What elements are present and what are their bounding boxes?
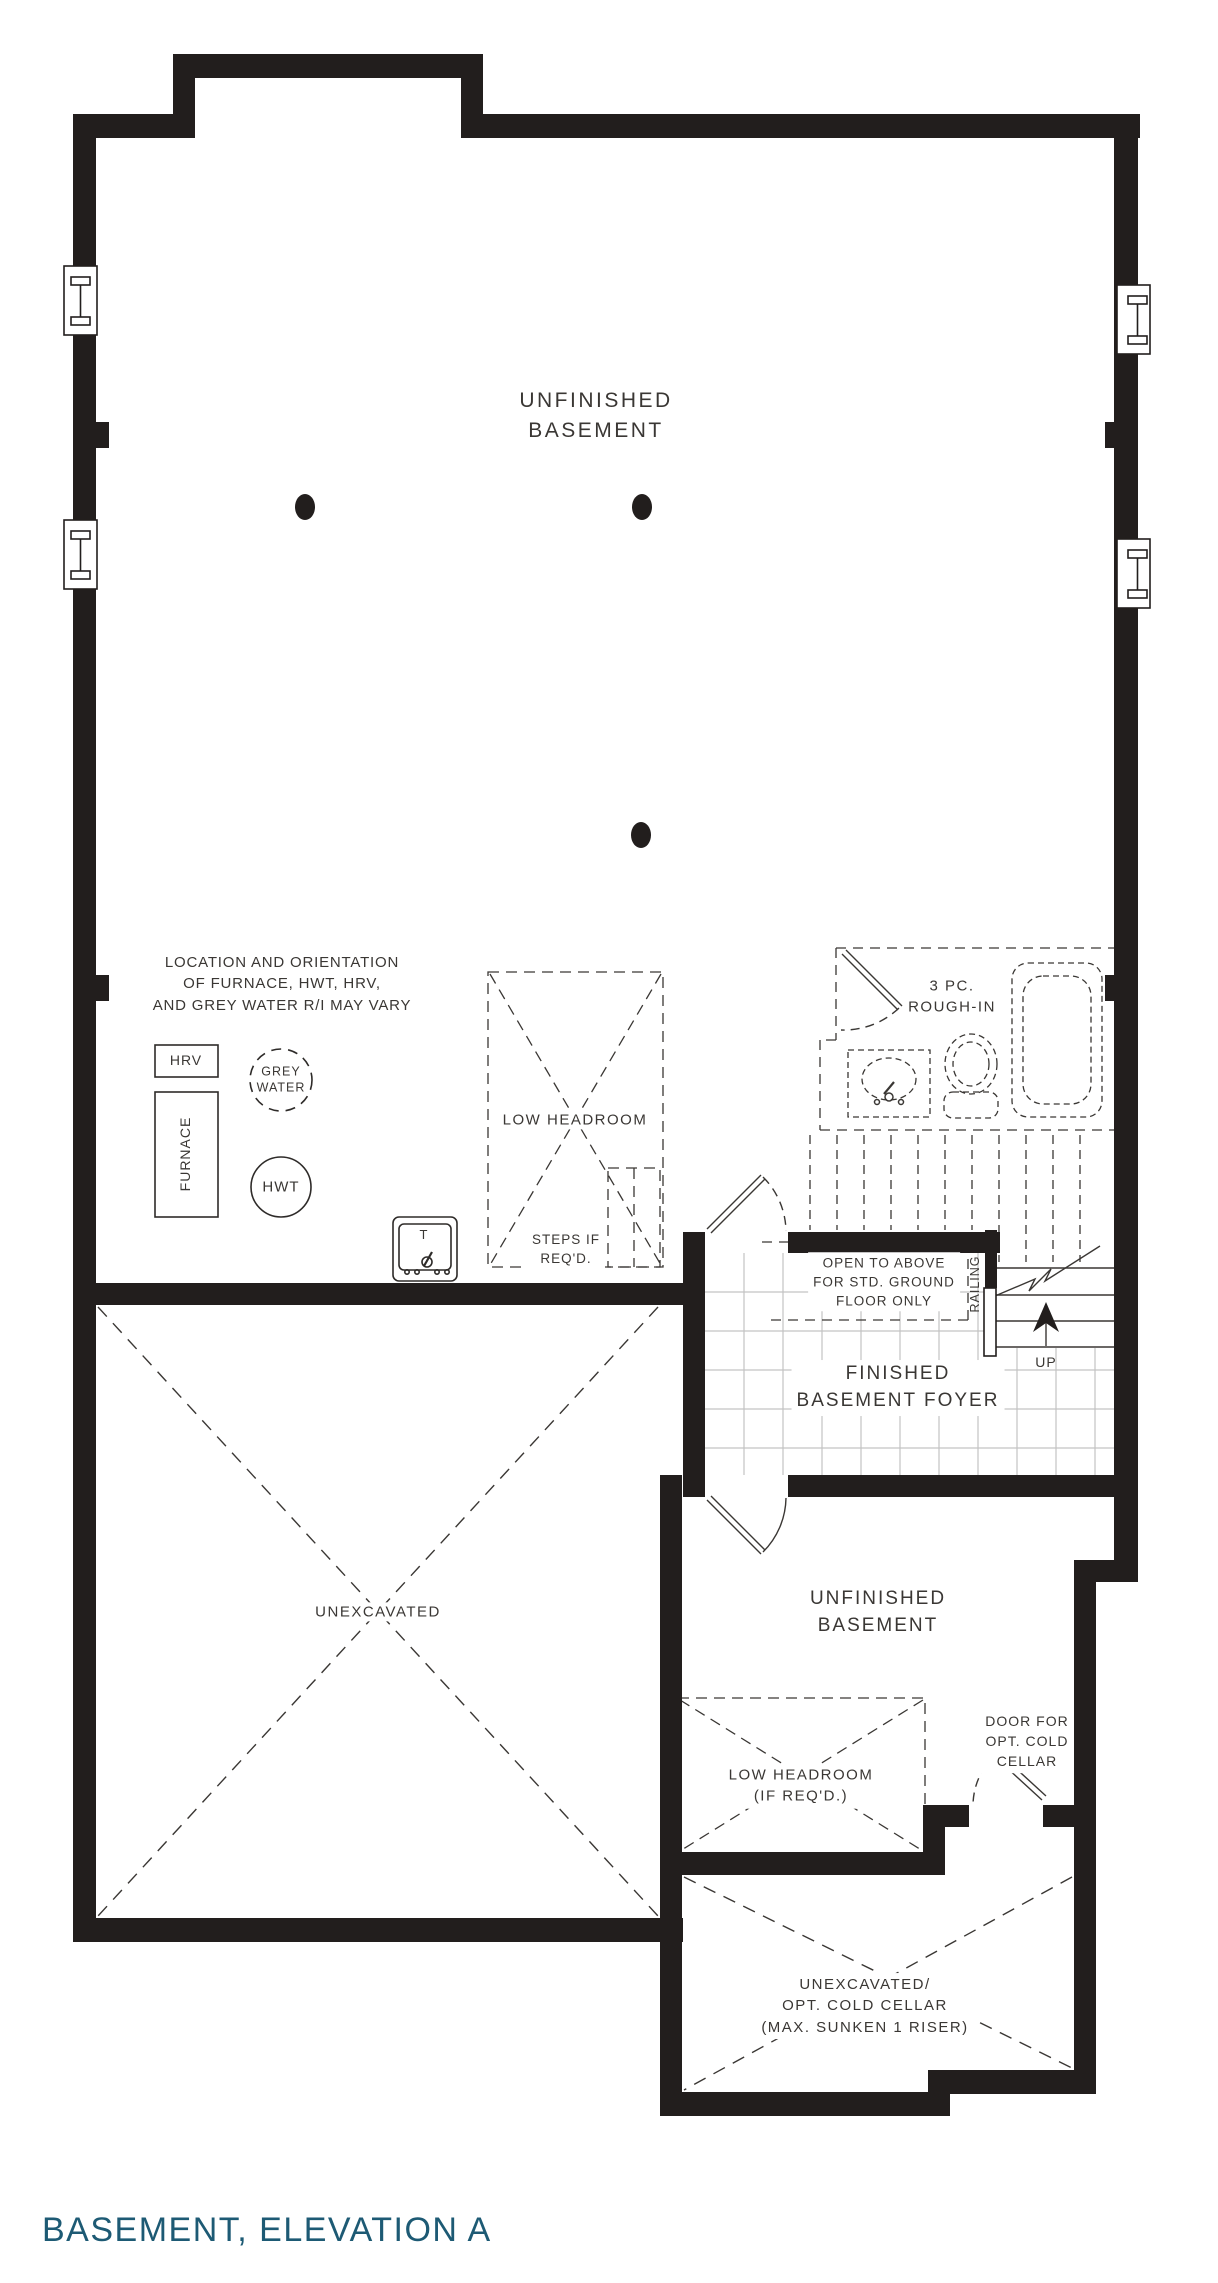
- stairs: [984, 1246, 1114, 1356]
- up-label: UP: [1035, 1353, 1056, 1373]
- bathtub-inner: [1023, 976, 1091, 1104]
- window-left-2: [64, 520, 97, 589]
- room-label-unfinished-basement-right: UNFINISHED BASEMENT: [810, 1586, 946, 1640]
- toilet-seat: [953, 1042, 989, 1086]
- toilet-tank: [944, 1092, 998, 1118]
- mechanical-equipment: [155, 1045, 457, 1281]
- steps-area: [608, 1168, 660, 1267]
- railing-label: RAILING: [967, 1255, 985, 1312]
- floor-plan: UNFINISHED BASEMENT LOCATION AND ORIENTA…: [0, 0, 1218, 2283]
- structural-columns: [295, 494, 652, 848]
- low-headroom-if-reqd-label: LOW HEADROOM (IF REQ'D.): [724, 1764, 879, 1809]
- sink-counter: [848, 1050, 930, 1117]
- page-title: BASEMENT, ELEVATION A: [42, 2206, 492, 2254]
- room-label-foyer: FINISHED BASEMENT FOYER: [792, 1360, 1005, 1416]
- rough-in-label: 3 PC. ROUGH-IN: [908, 976, 996, 1019]
- foyer-lower-door: [707, 1496, 786, 1554]
- railing-bar: [984, 1288, 996, 1356]
- window-right-1: [1117, 285, 1150, 354]
- room-label-cold-cellar: UNEXCAVATED/ OPT. COLD CELLAR (MAX. SUNK…: [756, 1973, 973, 2039]
- foyer-upper-door: [707, 1175, 786, 1233]
- mechanical-note: LOCATION AND ORIENTATION OF FURNACE, HWT…: [153, 952, 412, 1016]
- wall-notch: [1105, 422, 1118, 448]
- unexcavated-top-wall: [96, 1283, 683, 1305]
- left-wall: [73, 114, 96, 1942]
- grey-water-label: GREY WATER: [257, 1064, 306, 1095]
- column-dot: [295, 494, 315, 520]
- wall-notch: [96, 422, 109, 448]
- wall-notch: [96, 975, 109, 1001]
- open-to-above-label: OPEN TO ABOVE FOR STD. GROUND FLOOR ONLY: [808, 1252, 960, 1311]
- column-dot: [631, 822, 651, 848]
- bathroom-door: [841, 950, 902, 1030]
- foyer-top-wall: [788, 1232, 1000, 1253]
- walls: [73, 54, 1140, 2116]
- hrv-label: HRV: [170, 1051, 202, 1071]
- window-right-2: [1117, 539, 1150, 608]
- sink-faucet: [875, 1082, 904, 1105]
- hwt-label: HWT: [262, 1176, 299, 1197]
- window-left-1: [64, 266, 97, 335]
- furnace-label: FURNACE: [176, 1117, 196, 1192]
- room-label-unexcavated: UNEXCAVATED: [310, 1601, 446, 1622]
- steps-if-reqd-label: STEPS IF REQ'D.: [527, 1229, 605, 1269]
- door-cold-cellar-label: DOOR FOR OPT. COLD CELLAR: [980, 1711, 1073, 1773]
- laundry-tub-label: T: [420, 1226, 429, 1244]
- foyer-bottom-wall: [788, 1475, 1114, 1497]
- low-headroom-label: LOW HEADROOM: [498, 1109, 653, 1130]
- wall-notch: [1105, 975, 1118, 1001]
- foyer-left-wall: [683, 1232, 705, 1497]
- room-label-unfinished-basement-top: UNFINISHED BASEMENT: [519, 386, 672, 446]
- column-dot: [632, 494, 652, 520]
